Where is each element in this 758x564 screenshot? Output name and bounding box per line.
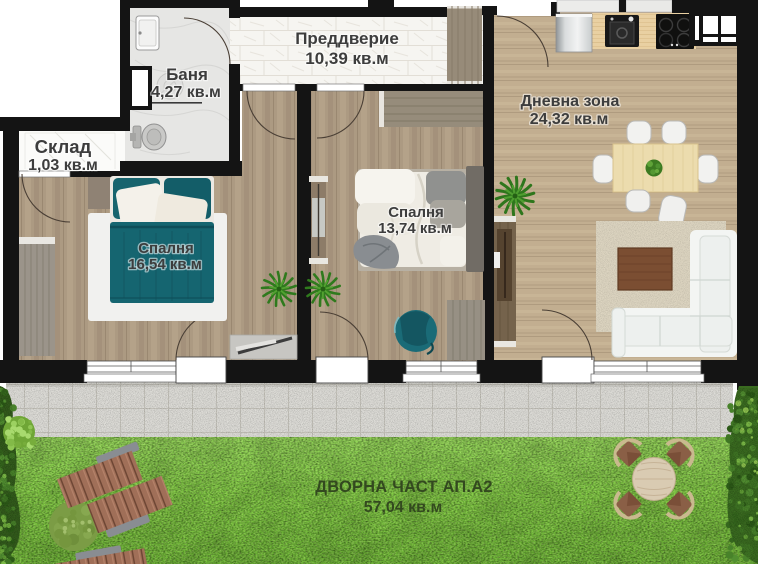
svg-text:Дневна зона: Дневна зона <box>521 93 620 110</box>
svg-text:13,74 кв.м: 13,74 кв.м <box>378 220 452 237</box>
svg-text:4,27 кв.м: 4,27 кв.м <box>151 84 221 101</box>
svg-text:Спалня: Спалня <box>388 204 444 221</box>
svg-text:1,03 кв.м: 1,03 кв.м <box>28 157 98 174</box>
svg-text:Склад: Склад <box>35 136 92 157</box>
svg-text:Баня: Баня <box>166 65 208 84</box>
svg-text:ДВОРНА ЧАСТ АП.А2: ДВОРНА ЧАСТ АП.А2 <box>315 478 492 496</box>
svg-text:Спалня: Спалня <box>138 240 194 257</box>
svg-text:57,04 кв.м: 57,04 кв.м <box>364 499 443 516</box>
svg-text:16,54 кв.м: 16,54 кв.м <box>128 256 202 273</box>
svg-text:24,32 кв.м: 24,32 кв.м <box>530 111 609 128</box>
svg-text:10,39 кв.м: 10,39 кв.м <box>305 49 389 68</box>
svg-text:Преддверие: Преддверие <box>295 29 399 48</box>
